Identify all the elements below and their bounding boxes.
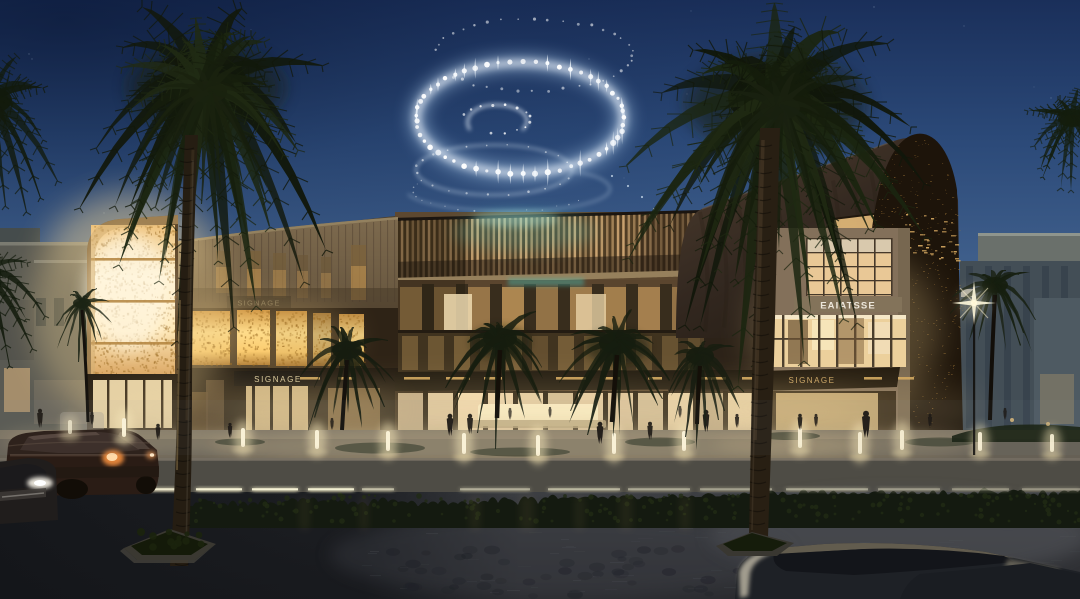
svg-text:EAIATSSE: EAIATSSE [820, 301, 876, 312]
